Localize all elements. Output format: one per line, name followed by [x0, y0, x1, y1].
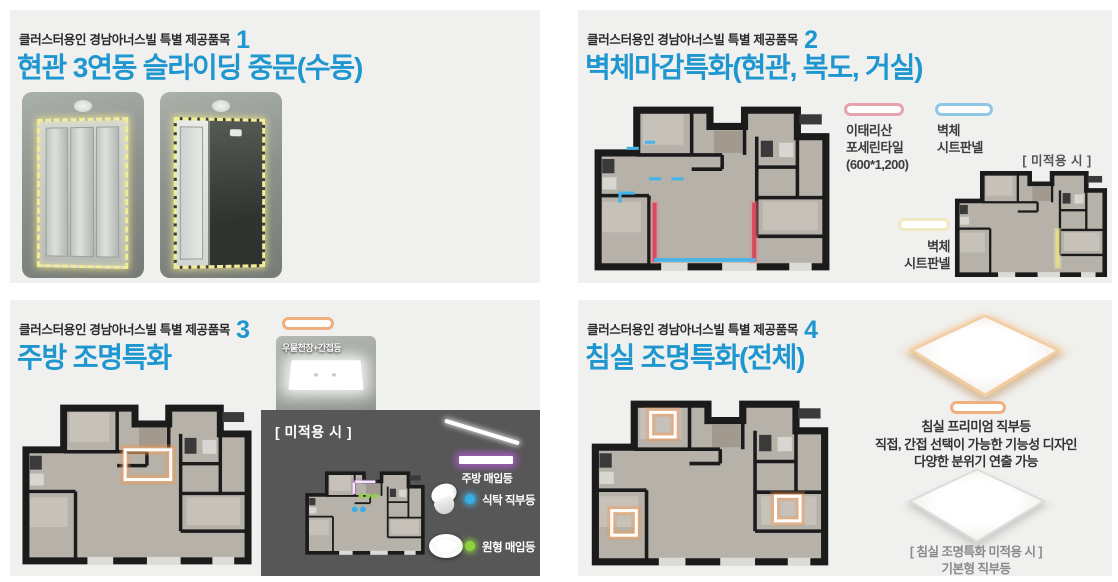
door-open-photo	[160, 92, 282, 278]
legend-label-porcelain-tile: 이태리산 포세린타일 (600*1,200)	[846, 122, 908, 173]
feature-panel-3: 클러스터용인 경남아너스빌 특별 제공품목3 주방 조명특화 우물천장+간접등 …	[10, 300, 540, 576]
table-light-dot-icon	[465, 494, 475, 504]
premium-ceiling-light-image	[896, 308, 1074, 410]
legend-swatch-sheet-panel-yellow	[898, 218, 950, 231]
floorplan-not-applied-lighting	[303, 458, 427, 568]
panel-title: 벽체마감특화(현관, 복도, 거실)	[585, 46, 922, 86]
basic-ceiling-light-image	[874, 472, 1079, 546]
panel-number: 3	[236, 316, 250, 344]
sheet-panel-yellow-mark	[1054, 228, 1061, 269]
door-closed-photo	[22, 92, 144, 278]
legend-swatch-kitchen-light	[282, 317, 334, 330]
feature-panel-1: 클러스터용인 경남아너스빌 특별 제공품목1 현관 3연동 슬라이딩 중문(수동…	[10, 10, 540, 283]
panel-title: 침실 조명특화(전체)	[585, 336, 804, 376]
legend-swatch-porcelain-tile	[844, 103, 904, 116]
dark-hallway	[210, 121, 262, 265]
legend-label-sheet-panel-yellow: 벽체 시트판넬	[870, 238, 950, 272]
sliding-door-highlight	[174, 117, 265, 269]
photo-caption: 우물천장+간접등	[282, 341, 341, 354]
round-light-dot-icon	[465, 541, 475, 551]
legend-swatch-sheet-panel	[935, 103, 993, 116]
brochure-page: 클러스터용인 경남아너스빌 특별 제공품목1 현관 3연동 슬라이딩 중문(수동…	[0, 0, 1118, 582]
spotlight-image	[429, 482, 459, 516]
basic-light-description: [ 침실 조명특화 미적용 시 ] 기본형 직부등	[840, 544, 1112, 576]
eyebrow-text: 클러스터용인 경남아너스빌 특별 제공품목	[19, 33, 230, 47]
floorplan-wall-finish	[590, 102, 834, 275]
floorplan-not-applied	[952, 168, 1110, 280]
coffered-ceiling-photo: 우물천장+간접등	[276, 336, 376, 416]
kitchen-recessed-light-swatch	[459, 456, 513, 464]
ceiling-lamp-icon	[212, 100, 230, 112]
floorplan-kitchen-light	[18, 400, 256, 569]
feature-panel-4: 클러스터용인 경남아너스빌 특별 제공품목4 침실 조명특화(전체)	[578, 300, 1112, 576]
legend-label-round-light: 원형 매입등	[482, 539, 535, 555]
not-applied-panel: [ 미적용 시 ] 주방 매입등	[261, 410, 540, 576]
eyebrow-text: 클러스터용인 경남아너스빌 특별 제공품목	[587, 323, 798, 337]
linear-light-icon	[444, 419, 520, 446]
panel-number: 4	[804, 316, 818, 344]
floorplan-bedroom-light	[587, 396, 833, 570]
not-applied-label: [ 미적용 시 ]	[1002, 150, 1112, 169]
round-light-image	[429, 534, 463, 558]
eyebrow-text: 클러스터용인 경남아너스빌 특별 제공품목	[587, 33, 798, 47]
sliding-door-highlight	[37, 117, 128, 269]
indirect-light-glow	[288, 360, 363, 390]
legend-swatch-bedroom-light	[950, 401, 1006, 414]
legend-label-kitchen-light: 주방 매입등	[447, 470, 527, 486]
round-light-dots	[358, 493, 378, 498]
legend-label-table-light: 식탁 직부등	[482, 492, 535, 508]
legend-label-sheet-panel: 벽체 시트판넬	[937, 122, 983, 156]
not-applied-label: [ 미적용 시 ]	[275, 422, 352, 442]
panel-title: 현관 3연동 슬라이딩 중문(수동)	[17, 46, 362, 86]
ceiling-lamp-icon	[74, 100, 92, 112]
premium-light-description: 침실 프리미엄 직부등 직접, 간접 선택이 가능한 기능성 디자인 다양한 분…	[840, 418, 1112, 471]
sliding-door-panels	[46, 126, 119, 257]
panel-title: 주방 조명특화	[17, 336, 171, 376]
feature-panel-2: 클러스터용인 경남아너스빌 특별 제공품목2 벽체마감특화(현관, 복도, 거실…	[578, 10, 1112, 283]
open-door-pane	[180, 126, 203, 260]
eyebrow-text: 클러스터용인 경남아너스빌 특별 제공품목	[19, 323, 230, 337]
